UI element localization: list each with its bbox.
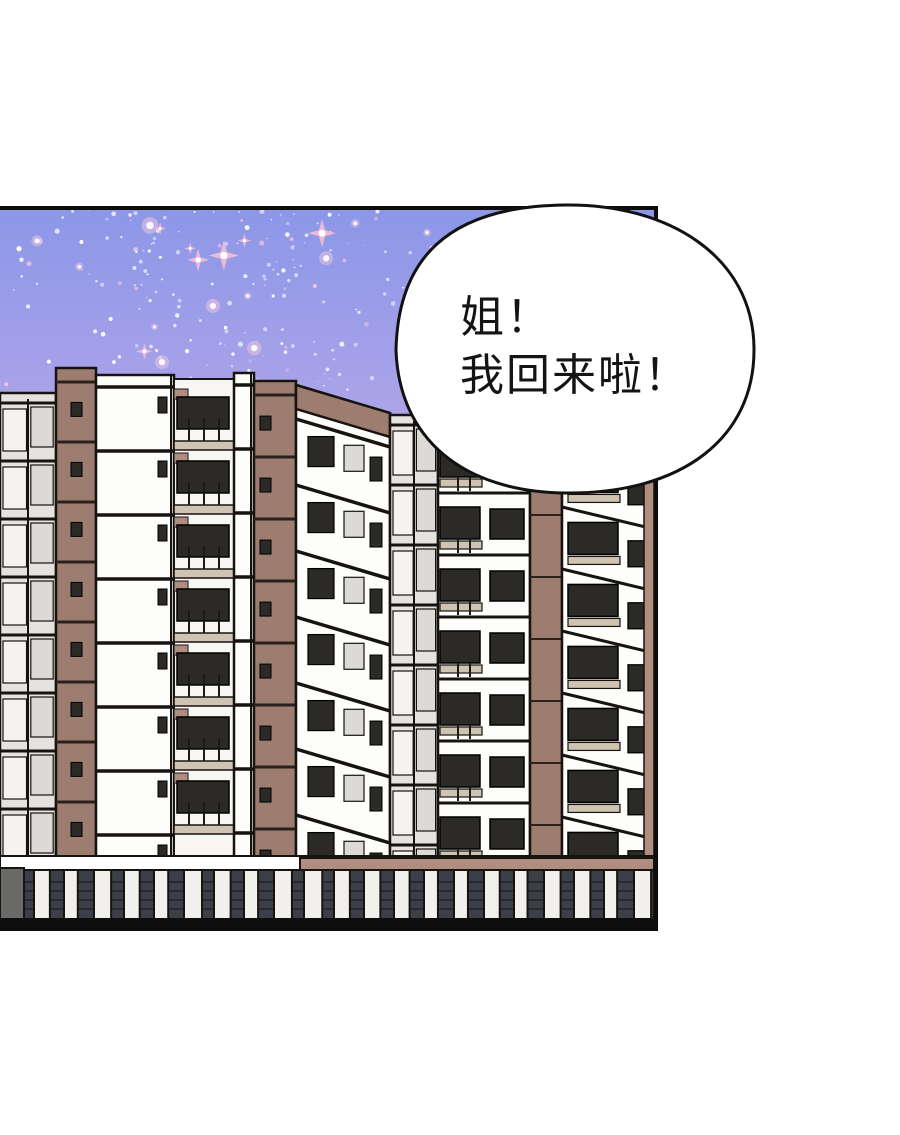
ground-colonnade	[0, 856, 654, 925]
speech-text: 姐！ 我回来啦！	[460, 289, 690, 405]
comic-page: 姐！ 我回来啦！	[0, 0, 900, 1135]
buildings	[0, 368, 654, 901]
speech-line-1: 姐！	[460, 289, 690, 347]
speech-line-2: 我回来啦！	[460, 347, 690, 405]
